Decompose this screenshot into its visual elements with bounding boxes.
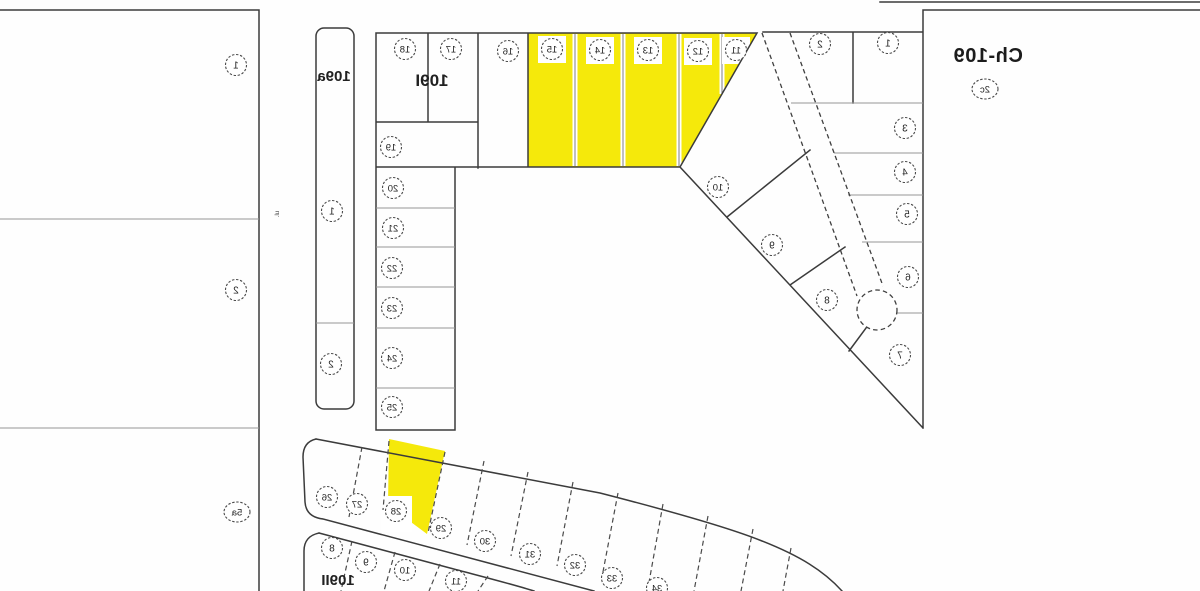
lot-number: 30 — [480, 536, 491, 547]
lot-number: 1 — [233, 60, 239, 71]
lot-number: 1 — [329, 206, 335, 217]
lot-marker-block-109II-8[interactable]: 8 — [322, 538, 343, 559]
lot-marker-strip-upper-29[interactable]: 29 — [431, 518, 452, 539]
lot-number: 32 — [570, 560, 581, 571]
street-name-label: ul. — [274, 211, 281, 218]
lot-number: 11 — [731, 45, 741, 56]
lot-marker-strip-upper-33[interactable]: 33 — [602, 568, 623, 589]
lot-number: 5 — [904, 209, 910, 220]
lot-marker-strip-upper-31[interactable]: 31 — [520, 544, 541, 565]
lot-marker-block-109I-17[interactable]: 17 — [441, 39, 462, 60]
lot-number: 2 — [233, 285, 239, 296]
lot-marker-strip-upper-32[interactable]: 32 — [565, 555, 586, 576]
lot-number: 2c — [980, 84, 990, 95]
lot-marker-region-code-2c[interactable]: 2c — [972, 79, 998, 99]
lot-number: 8 — [824, 295, 830, 306]
block-label-109ii: 109II — [321, 572, 354, 589]
lot-number: 18 — [400, 44, 411, 55]
lot-marker-left-parcel-1[interactable]: 1 — [226, 55, 247, 76]
lot-marker-strip-upper-28[interactable]: 28 — [386, 501, 407, 522]
lot-number: 8 — [329, 543, 335, 554]
lot-number: 4 — [902, 167, 908, 178]
lot-number: 22 — [387, 263, 398, 274]
lot-marker-right-block-5[interactable]: 5 — [897, 204, 918, 225]
lot-marker-block-109I-16[interactable]: 16 — [498, 41, 519, 62]
lot-marker-block-109II-11[interactable]: 11 — [446, 571, 467, 591]
lot-number: 19 — [386, 142, 397, 153]
parcel-divider-lines — [0, 103, 923, 428]
lot-number: 13 — [643, 45, 654, 56]
lot-marker-strip-upper-27[interactable]: 27 — [347, 494, 368, 515]
lot-number: 9 — [363, 557, 369, 568]
lot-marker-block-109I-20[interactable]: 20 — [383, 178, 404, 199]
lot-number: 17 — [446, 44, 457, 55]
lot-marker-right-block-8[interactable]: 8 — [817, 290, 838, 311]
lot-marker-block-109I-21[interactable]: 21 — [383, 218, 404, 239]
lot-marker-strip-upper-30[interactable]: 30 — [475, 531, 496, 552]
lot-number: 26 — [322, 492, 333, 503]
lot-marker-block-109I-15[interactable]: 15 — [542, 39, 563, 60]
lot-marker-right-block-7[interactable]: 7 — [890, 345, 911, 366]
lot-marker-block-109I-22[interactable]: 22 — [382, 258, 403, 279]
lot-marker-block-109a-1[interactable]: 1 — [322, 201, 343, 222]
lot-number: 29 — [436, 523, 447, 534]
lot-number: 12 — [693, 46, 704, 57]
cul-de-sac-circle — [857, 290, 897, 330]
lot-marker-block-109II-9[interactable]: 9 — [356, 552, 377, 573]
lot-marker-right-block-1[interactable]: 1 — [878, 33, 899, 54]
lot-marker-block-109I-11[interactable]: 11 — [726, 40, 747, 61]
plat-map-stage: Ch-109 109a 109I 109II ul. 125a121817161… — [0, 0, 1200, 591]
region-label: Ch-109 — [953, 45, 1023, 67]
lot-number: 5a — [231, 507, 242, 518]
lot-number: 31 — [525, 549, 536, 560]
lot-number: 7 — [897, 350, 903, 361]
lot-number: 1 — [885, 38, 891, 49]
lot-marker-right-block-2[interactable]: 2 — [810, 34, 831, 55]
lot-marker-right-block-10[interactable]: 10 — [708, 177, 729, 198]
lot-number: 24 — [387, 353, 398, 364]
lot-number: 15 — [547, 44, 558, 55]
lot-number: 21 — [388, 223, 399, 234]
lot-marker-block-109I-14[interactable]: 14 — [590, 40, 611, 61]
lot-number: 20 — [388, 183, 399, 194]
lot-marker-block-109I-12[interactable]: 12 — [688, 41, 709, 62]
road-dashed-edges — [762, 33, 883, 296]
lot-number: 28 — [391, 506, 402, 517]
lot-number: 10 — [400, 565, 411, 576]
block-label-109a: 109a — [317, 68, 351, 85]
block-label-109i: 109I — [415, 71, 448, 90]
lot-marker-block-109I-18[interactable]: 18 — [395, 39, 416, 60]
lot-number: 23 — [387, 303, 398, 314]
lot-number: 6 — [905, 272, 911, 283]
lot-number: 11 — [451, 576, 461, 587]
lot-number: 3 — [902, 123, 908, 134]
lot-number: 9 — [769, 240, 775, 251]
lot-marker-right-block-3[interactable]: 3 — [895, 118, 916, 139]
lot-marker-left-parcel-5a[interactable]: 5a — [224, 502, 250, 522]
lot-marker-right-block-9[interactable]: 9 — [762, 235, 783, 256]
lot-marker-block-109I-19[interactable]: 19 — [381, 137, 402, 158]
lot-number: 34 — [652, 583, 663, 591]
lot-marker-block-109a-2[interactable]: 2 — [321, 354, 342, 375]
lot-number: 2 — [817, 39, 823, 50]
lot-number: 27 — [352, 499, 363, 510]
lot-marker-block-109I-24[interactable]: 24 — [382, 348, 403, 369]
lot-marker-block-109I-23[interactable]: 23 — [382, 298, 403, 319]
lot-number: 14 — [595, 45, 606, 56]
lot-marker-right-block-6[interactable]: 6 — [898, 267, 919, 288]
lot-marker-block-109I-13[interactable]: 13 — [638, 40, 659, 61]
plat-map: Ch-109 109a 109I 109II ul. 125a121817161… — [0, 0, 1200, 591]
lot-marker-strip-upper-26[interactable]: 26 — [317, 487, 338, 508]
lot-number: 25 — [387, 402, 398, 413]
lot-number: 16 — [503, 46, 514, 57]
lot-marker-block-109I-25[interactable]: 25 — [382, 397, 403, 418]
lot-marker-left-parcel-2[interactable]: 2 — [226, 280, 247, 301]
lot-number: 33 — [607, 573, 618, 584]
lot-number: 10 — [713, 182, 724, 193]
lot-marker-block-109II-10[interactable]: 10 — [395, 560, 416, 581]
lot-number: 2 — [328, 359, 334, 370]
lot-marker-right-block-4[interactable]: 4 — [895, 162, 916, 183]
